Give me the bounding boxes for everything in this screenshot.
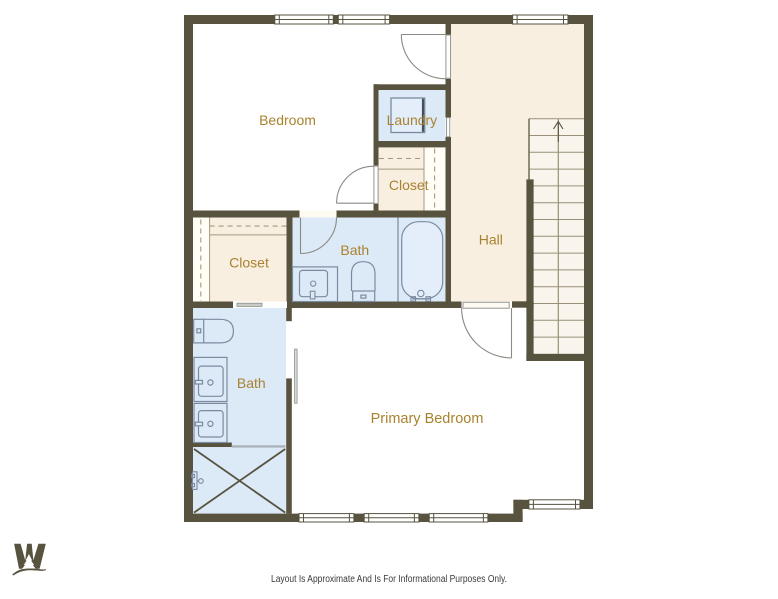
svg-text:Layout Is Approximate And Is F: Layout Is Approximate And Is For Informa…	[271, 574, 507, 585]
svg-text:Hall: Hall	[479, 232, 503, 248]
svg-text:Bedroom: Bedroom	[259, 112, 316, 128]
svg-text:Bath: Bath	[237, 375, 266, 391]
svg-text:Closet: Closet	[229, 255, 269, 271]
svg-text:Closet: Closet	[389, 177, 429, 193]
svg-text:Primary Bedroom: Primary Bedroom	[371, 411, 484, 427]
svg-text:Laundry: Laundry	[387, 112, 438, 128]
svg-text:Bath: Bath	[340, 242, 369, 258]
